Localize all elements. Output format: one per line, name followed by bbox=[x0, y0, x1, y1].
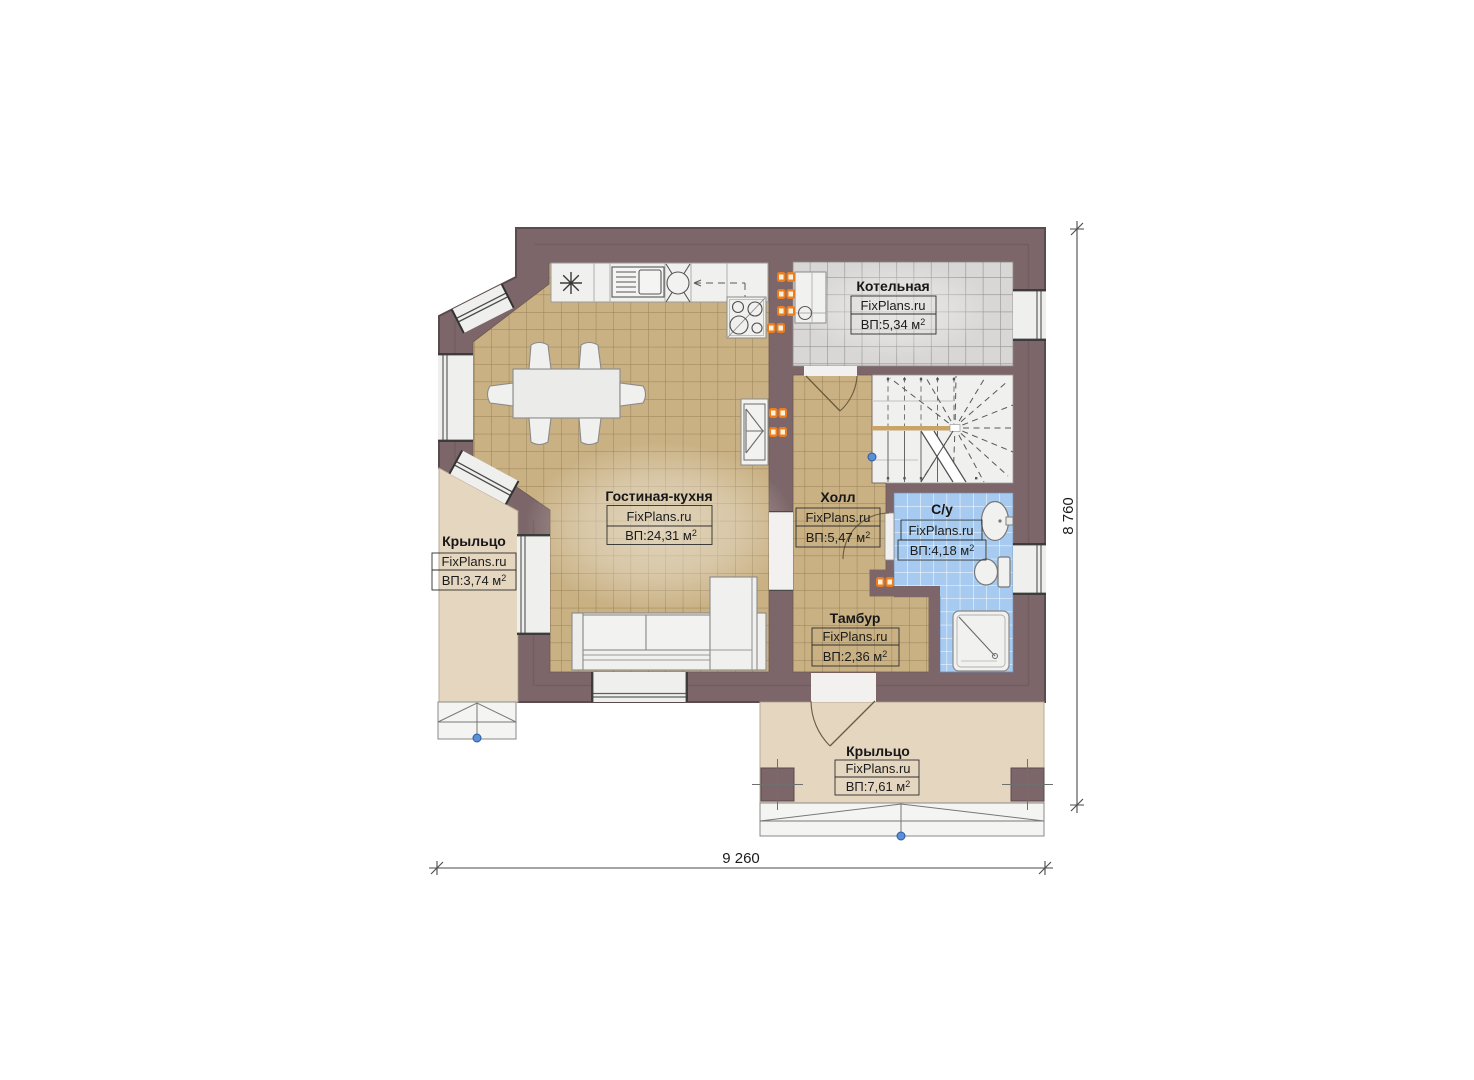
svg-text:Крыльцо: Крыльцо bbox=[442, 533, 506, 549]
svg-text:FixPlans.ru: FixPlans.ru bbox=[805, 510, 870, 525]
svg-text:ВП:2,36 м2: ВП:2,36 м2 bbox=[823, 649, 888, 664]
svg-text:FixPlans.ru: FixPlans.ru bbox=[860, 298, 925, 313]
svg-text:ВП:5,34 м2: ВП:5,34 м2 bbox=[861, 317, 926, 332]
svg-text:Крыльцо: Крыльцо bbox=[846, 743, 910, 759]
svg-text:8 760: 8 760 bbox=[1060, 497, 1077, 535]
svg-text:ВП:5,47 м2: ВП:5,47 м2 bbox=[806, 530, 871, 545]
svg-text:Тамбур: Тамбур bbox=[830, 610, 881, 626]
svg-text:FixPlans.ru: FixPlans.ru bbox=[441, 554, 506, 569]
svg-text:FixPlans.ru: FixPlans.ru bbox=[626, 509, 691, 524]
svg-text:Котельная: Котельная bbox=[856, 278, 929, 294]
svg-text:ВП:24,31 м2: ВП:24,31 м2 bbox=[625, 528, 697, 543]
svg-text:FixPlans.ru: FixPlans.ru bbox=[822, 629, 887, 644]
svg-text:ВП:3,74 м2: ВП:3,74 м2 bbox=[442, 573, 507, 588]
svg-text:Гостиная-кухня: Гостиная-кухня bbox=[605, 488, 712, 504]
svg-text:ВП:7,61 м2: ВП:7,61 м2 bbox=[846, 779, 911, 794]
svg-text:С/у: С/у bbox=[931, 501, 953, 517]
svg-text:9 260: 9 260 bbox=[722, 850, 760, 867]
svg-text:Холл: Холл bbox=[820, 489, 855, 505]
svg-text:FixPlans.ru: FixPlans.ru bbox=[845, 761, 910, 776]
svg-text:ВП:4,18 м2: ВП:4,18 м2 bbox=[910, 543, 975, 558]
svg-text:FixPlans.ru: FixPlans.ru bbox=[908, 523, 973, 538]
